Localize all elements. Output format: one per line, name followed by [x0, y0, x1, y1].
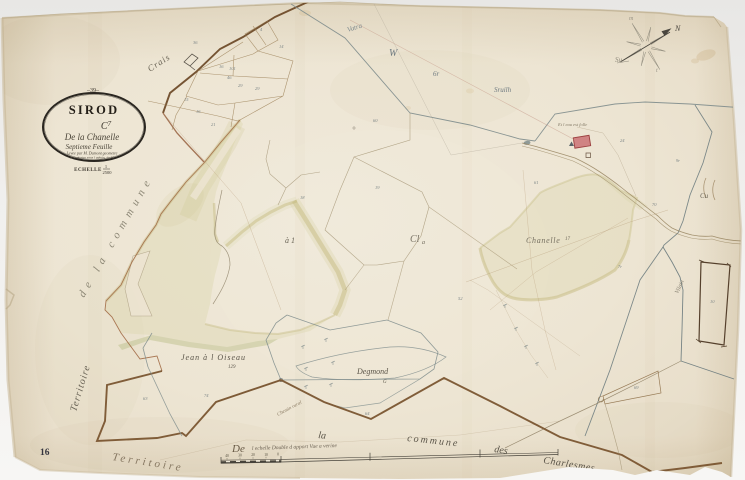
svg-text:40: 40 — [225, 454, 229, 458]
svg-text:19: 19 — [375, 185, 380, 190]
svg-text:6r: 6r — [433, 70, 440, 78]
svg-text:–39–: –39– — [86, 88, 100, 94]
svg-text:du cadastre sous l admin. de M: du cadastre sous l admin. de M. — [70, 156, 115, 160]
svg-text:2500: 2500 — [103, 170, 113, 175]
svg-text:Cl: Cl — [410, 234, 420, 245]
svg-text:De la Chanelle: De la Chanelle — [64, 132, 120, 142]
svg-text:64: 64 — [365, 411, 370, 416]
svg-text:24: 24 — [620, 138, 625, 143]
svg-text:46: 46 — [227, 75, 232, 80]
svg-text:ECHELLE: ECHELLE — [74, 168, 102, 173]
svg-text:G: G — [383, 380, 387, 385]
svg-text:63: 63 — [143, 396, 148, 401]
svg-text:N: N — [674, 24, 681, 33]
svg-text:Jean à l Oiseau: Jean à l Oiseau — [181, 353, 246, 362]
svg-text:17: 17 — [565, 237, 571, 242]
svg-text:52: 52 — [458, 296, 463, 301]
svg-text:SIROD: SIROD — [69, 103, 120, 117]
svg-text:29: 29 — [255, 86, 260, 91]
svg-text:10: 10 — [710, 299, 715, 304]
svg-text:Chanelle: Chanelle — [526, 236, 560, 245]
svg-text:60: 60 — [373, 118, 378, 123]
svg-text:Degmond: Degmond — [356, 367, 389, 376]
svg-text:69: 69 — [634, 385, 639, 390]
svg-text:70: 70 — [652, 202, 657, 207]
svg-text:20: 20 — [251, 453, 255, 457]
svg-text:14: 14 — [279, 44, 284, 49]
svg-text:7r: 7r — [618, 264, 622, 269]
svg-text:16: 16 — [196, 109, 201, 114]
svg-text:De: De — [231, 443, 245, 455]
svg-text:m: m — [629, 16, 634, 22]
svg-text:à 1: à 1 — [285, 236, 295, 245]
svg-text:10: 10 — [264, 453, 268, 457]
svg-text:Et l eau est folle: Et l eau est folle — [557, 122, 587, 127]
svg-text:9r: 9r — [676, 158, 680, 163]
svg-text:16: 16 — [40, 448, 50, 458]
svg-text:21: 21 — [211, 122, 216, 127]
svg-text:16: 16 — [219, 64, 224, 69]
svg-text:des: des — [494, 444, 509, 457]
svg-text:74: 74 — [204, 393, 209, 398]
svg-text:129: 129 — [228, 365, 236, 370]
svg-text:0: 0 — [277, 453, 279, 457]
svg-text:101: 101 — [229, 66, 236, 71]
svg-text:a: a — [422, 240, 425, 246]
svg-text:15: 15 — [184, 97, 189, 102]
svg-text:29: 29 — [238, 83, 243, 88]
svg-text:1: 1 — [105, 164, 107, 169]
svg-text:Sruilh: Sruilh — [494, 86, 512, 94]
svg-text:18: 18 — [300, 195, 305, 200]
svg-text:36: 36 — [193, 40, 198, 45]
svg-text:la: la — [318, 430, 327, 442]
svg-text:Cu: Cu — [700, 192, 709, 200]
svg-text:61: 61 — [534, 180, 539, 185]
